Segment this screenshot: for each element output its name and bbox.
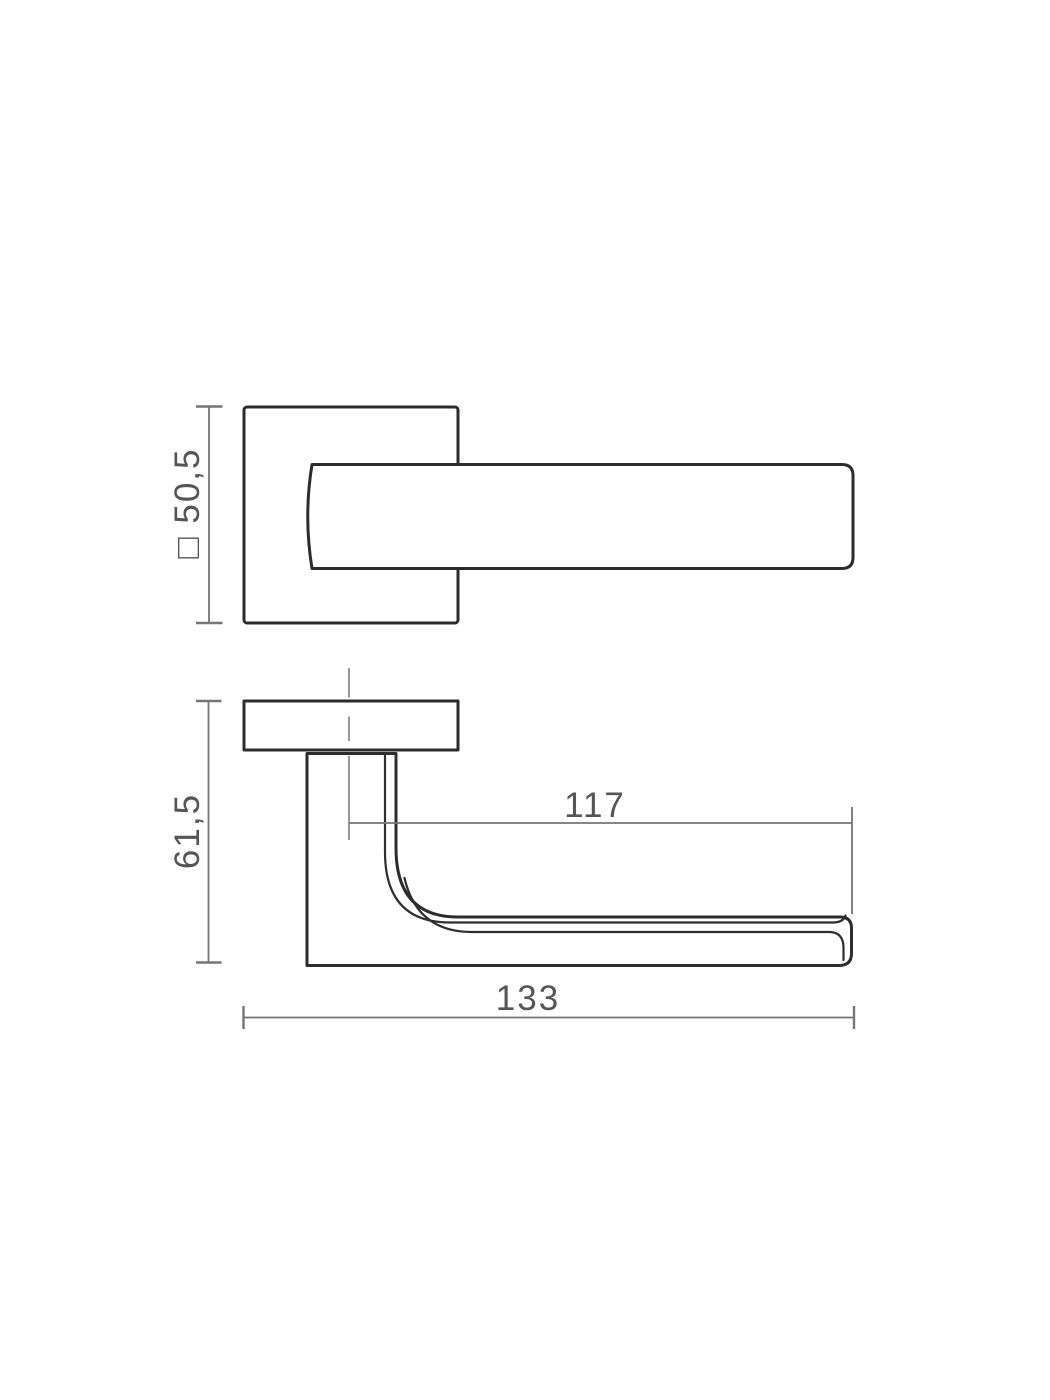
drawing-canvas: □ 50,5 61,5: [0, 0, 1050, 1400]
front-view: □ 50,5: [168, 407, 853, 624]
side-view: 61,5 117 133: [168, 668, 854, 1029]
overall-length-dimension: 133: [244, 979, 855, 1029]
side-view-rose-plate: [244, 701, 458, 750]
grip-length-dimension: 117: [349, 786, 852, 914]
height-dimension: 61,5: [168, 701, 222, 963]
lever-contour-line: [385, 754, 846, 923]
front-view-lever-handle: [308, 465, 853, 569]
dimension-label-rose-size: □ 50,5: [168, 448, 207, 559]
front-view-rose-dimension: □ 50,5: [168, 407, 223, 624]
dimension-label-height: 61,5: [168, 793, 207, 869]
dimension-label-overall-length: 133: [496, 979, 560, 1018]
door-handle-technical-drawing: □ 50,5 61,5: [0, 0, 1050, 1400]
dimension-label-grip-length: 117: [564, 786, 626, 825]
